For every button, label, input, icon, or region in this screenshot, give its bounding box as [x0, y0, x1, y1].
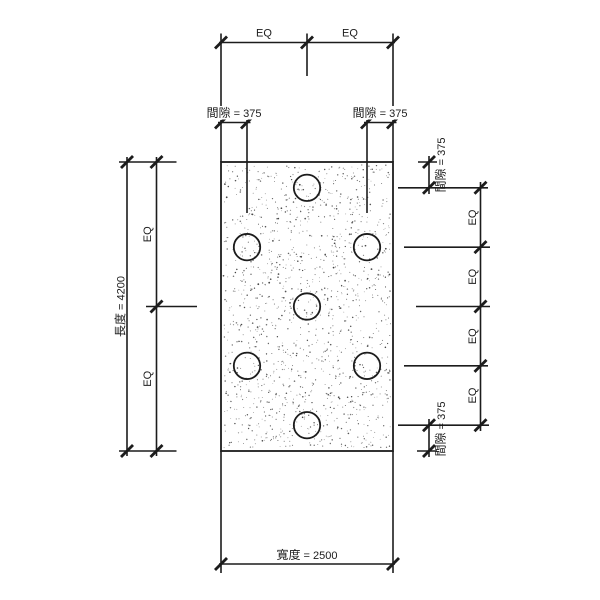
svg-text:= 375: = 375: [380, 108, 408, 120]
svg-text:EQ: EQ: [467, 209, 479, 225]
svg-text:EQ: EQ: [256, 28, 272, 40]
svg-text:= 375: = 375: [436, 402, 448, 430]
svg-text:EQ: EQ: [342, 28, 358, 40]
svg-text:= 375: = 375: [436, 138, 448, 166]
svg-text:EQ: EQ: [467, 387, 479, 403]
svg-text:= 375: = 375: [234, 108, 262, 120]
svg-text:EQ: EQ: [467, 328, 479, 344]
svg-text:EQ: EQ: [467, 268, 479, 284]
svg-text:= 2500: = 2500: [304, 550, 338, 562]
svg-text:EQ: EQ: [142, 370, 154, 386]
svg-text:EQ: EQ: [142, 226, 154, 242]
svg-text:= 4200: = 4200: [116, 276, 128, 310]
